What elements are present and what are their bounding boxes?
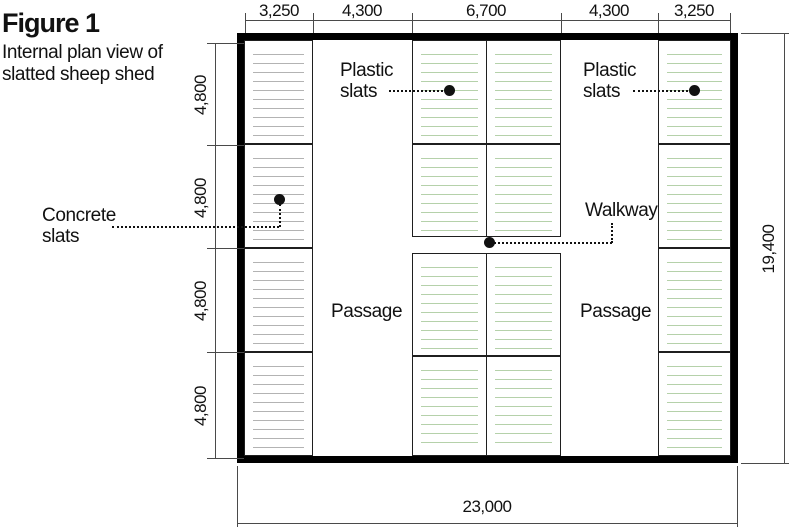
plastic-slats-pattern (421, 362, 478, 451)
plastic-slat-panel (412, 356, 487, 456)
figure-subtitle: Internal plan view of slatted sheep shed (2, 42, 184, 86)
dimension-line-left (215, 43, 216, 458)
dimension-tick (207, 248, 244, 249)
plastic-slat-panel (486, 40, 561, 144)
plastic-slats-pattern (495, 362, 552, 451)
concrete-slat-panel (244, 248, 313, 352)
label-passage-left: Passage (331, 301, 397, 322)
dimension-label-top-1: 3,250 (249, 1, 309, 21)
dimension-label-top-4: 4,300 (579, 1, 639, 21)
dimension-tick (245, 13, 246, 33)
concrete-slat-panel (244, 352, 313, 456)
leader-line-concrete-v (279, 204, 281, 227)
leader-line-walkway-v (611, 223, 613, 243)
plastic-slat-panel (658, 352, 731, 456)
plastic-slats-pattern (667, 254, 722, 347)
concrete-slats-pattern (253, 254, 304, 347)
dimension-tick (207, 145, 244, 146)
plastic-slat-panel (658, 144, 731, 248)
dimension-tick (730, 13, 731, 33)
plastic-slats-pattern (421, 259, 478, 351)
plastic-slat-panel (412, 253, 487, 356)
dimension-line-right (784, 33, 785, 463)
plastic-slats-pattern (667, 358, 722, 451)
dimension-tick (207, 352, 244, 353)
dimension-tick (561, 13, 562, 33)
plastic-slats-pattern (495, 259, 552, 351)
dimension-tick (737, 466, 738, 527)
dimension-line-bottom (237, 523, 737, 524)
leader-line-plastic-left (389, 90, 447, 92)
leader-line-concrete-h (112, 226, 279, 228)
concrete-slat-panel (244, 40, 313, 144)
dimension-label-left-1: 4,800 (191, 67, 211, 123)
plastic-slat-panel (412, 144, 487, 237)
dimension-tick (207, 458, 244, 459)
dimension-tick (412, 13, 413, 33)
callout-dot-plastic-left (444, 85, 455, 96)
dimension-label-top-2: 4,300 (332, 1, 392, 21)
shed-interior (244, 40, 731, 456)
concrete-slats-pattern (253, 358, 304, 451)
plastic-slat-panel (486, 356, 561, 456)
label-plastic-slats-right: Plastic slats (583, 60, 647, 102)
label-plastic-slats-left: Plastic slats (340, 60, 404, 102)
dimension-tick (237, 466, 238, 527)
dimension-label-left-4: 4,800 (191, 378, 211, 434)
dimension-label-top-5: 3,250 (664, 1, 724, 21)
dimension-label-left-3: 4,800 (191, 273, 211, 329)
plastic-slats-pattern (667, 150, 722, 243)
callout-dot-walkway (484, 237, 495, 248)
plastic-slat-panel (486, 253, 561, 356)
plastic-slats-pattern (495, 46, 552, 139)
figure-canvas: Figure 1 Internal plan view of slatted s… (0, 0, 790, 527)
concrete-slats-pattern (253, 46, 304, 139)
dimension-tick (207, 43, 244, 44)
callout-dot-concrete (274, 194, 285, 205)
shed-outline (237, 33, 738, 463)
dimension-tick (741, 33, 789, 34)
dimension-label-right-total: 19,400 (759, 214, 779, 284)
dimension-label-left-2: 4,800 (191, 170, 211, 226)
dimension-label-bottom-total: 23,000 (437, 497, 537, 517)
plastic-slat-panel (486, 144, 561, 237)
label-walkway: Walkway (585, 200, 665, 221)
plastic-slat-panel (658, 248, 731, 352)
dimension-label-top-3: 6,700 (456, 1, 516, 21)
plastic-slats-pattern (495, 150, 552, 232)
figure-title: Figure 1 (2, 8, 99, 39)
dimension-tick (658, 13, 659, 33)
dimension-tick (313, 13, 314, 33)
leader-line-walkway-h (494, 242, 612, 244)
label-passage-right: Passage (580, 301, 646, 322)
callout-dot-plastic-right (689, 85, 700, 96)
leader-line-plastic-right (633, 90, 692, 92)
plastic-slats-pattern (421, 150, 478, 232)
dimension-tick (741, 463, 789, 464)
